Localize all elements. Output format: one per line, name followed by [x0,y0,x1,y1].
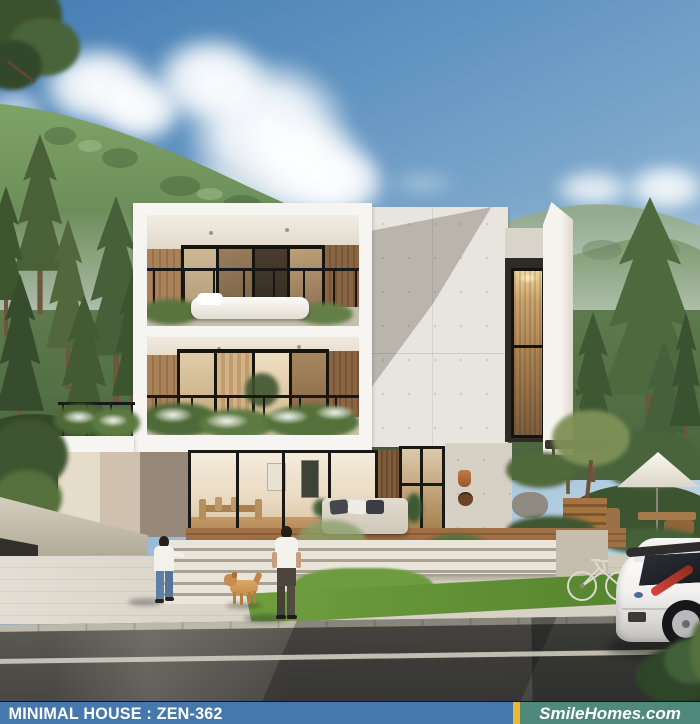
ceiling-light [209,231,213,235]
brand-section: SmileHomes.com [520,702,700,724]
sofa-pillow-dark [366,500,384,514]
boulder [512,492,548,518]
promo-image: MINIMAL HOUSE : ZEN-362 SmileHomes.com [0,0,700,724]
white-flowers [205,413,249,429]
house-middle-floor [133,337,372,453]
model-label: MINIMAL HOUSE : ZEN-362 [0,704,223,724]
ceiling-light [285,228,289,232]
balcony-slab [58,436,134,453]
interior-plant [406,493,422,523]
car-sensor [628,612,646,622]
white-flowers [98,414,128,427]
wall-planter-round [458,492,473,506]
man-arm [272,552,277,568]
daybed-pillow [197,293,223,305]
man-shirt [275,537,298,570]
road-sunlit-patch [51,628,292,701]
white-flowers [62,410,96,424]
white-flowers [315,405,355,420]
white-flowers [267,409,309,424]
banner-divider [513,702,520,724]
white-flowers [153,407,193,423]
middle-floor-opening [147,337,359,435]
dog-leg [248,592,251,604]
boy-shoes [155,599,164,603]
umbrella-pole [656,488,658,534]
road [0,615,700,701]
top-floor-opening [147,215,359,326]
boy-shirt [154,546,174,572]
fin-upper-wall [505,228,545,262]
olive-tree-canopy [552,410,630,466]
dining-chair [199,499,206,521]
man-shoes [287,615,297,619]
boy-jeans-left [156,571,164,600]
dining-chair [215,497,222,511]
man-shoes [276,615,286,619]
dog-leg [240,593,243,605]
house-top-floor [133,203,372,337]
concrete-panel-wall [370,207,508,447]
boy-jeans-right [165,571,173,598]
brand-label: SmileHomes.com [539,704,681,724]
house-rendering-scene [0,0,700,701]
man-leg [277,586,285,616]
dog-leg [233,592,236,604]
dog-ear [232,572,237,578]
interior-art-dark [301,460,319,498]
man-arm [296,552,301,568]
dining-chair [255,499,262,521]
outdoor-table [638,512,696,520]
caption-banner: MINIMAL HOUSE : ZEN-362 SmileHomes.com [0,701,700,724]
dog-shadow [226,602,262,609]
wall-sconce [458,470,471,487]
sofa-pillow-dark [329,499,348,515]
sofa-pillow-light [347,499,366,515]
model-label-section: MINIMAL HOUSE : ZEN-362 [0,702,513,724]
man-trousers [277,568,296,586]
dog-leg [253,591,256,603]
boy-shoes [165,597,174,601]
man-leg [287,586,295,616]
tall-window [511,268,545,438]
ground-right-concrete-wall [445,443,512,535]
pine-trees-right [552,192,700,542]
car-brand-badge [634,592,643,598]
